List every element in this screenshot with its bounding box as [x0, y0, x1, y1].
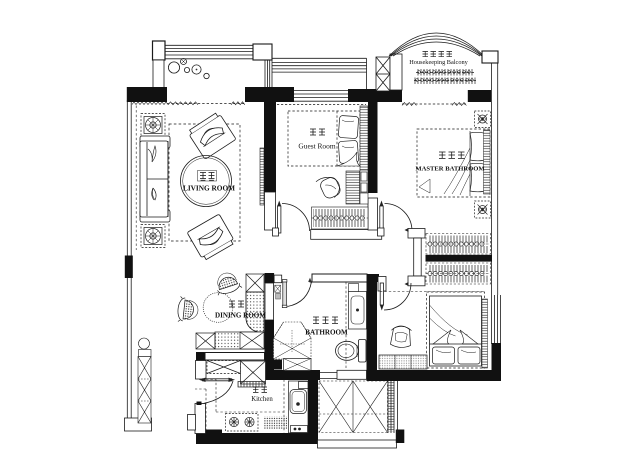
- svg-text:MASTER BATHROOM: MASTER BATHROOM: [415, 166, 485, 173]
- svg-text:DINING ROOM: DINING ROOM: [215, 312, 266, 320]
- svg-text:Housekeeping Balcony: Housekeeping Balcony: [409, 59, 468, 66]
- svg-text:LIVING ROOM: LIVING ROOM: [183, 184, 235, 193]
- svg-text:Kitchen: Kitchen: [251, 396, 273, 403]
- svg-text:Guest Room: Guest Room: [298, 142, 335, 151]
- svg-text:BATHROOM: BATHROOM: [305, 329, 348, 337]
